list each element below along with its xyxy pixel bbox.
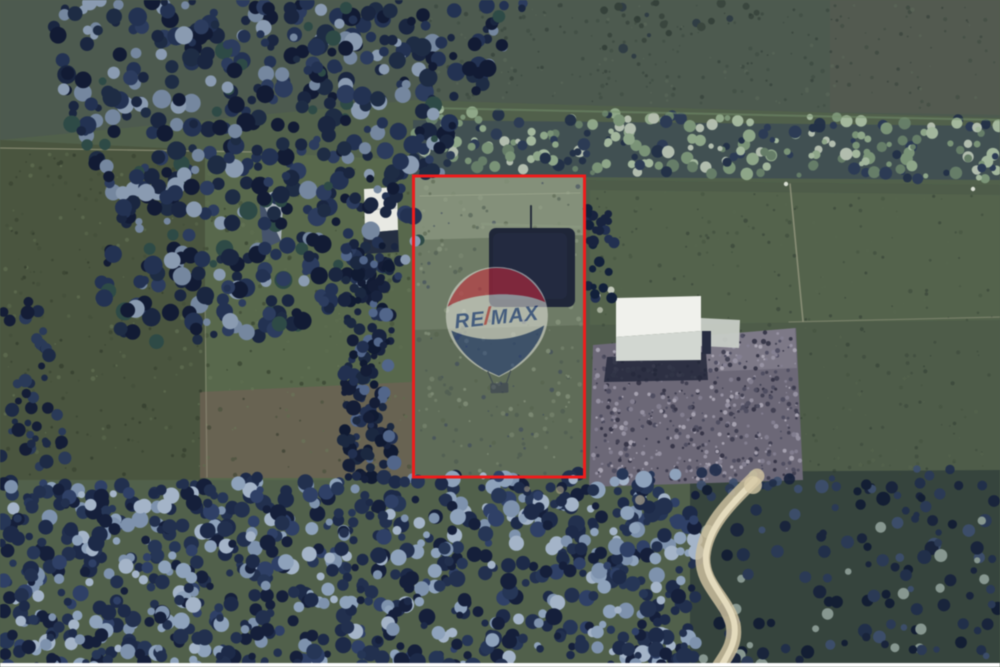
barn-annex-door xyxy=(702,331,711,354)
bottom-white-strip xyxy=(0,663,1000,667)
satellite-photo-canvas: RE/MAX xyxy=(0,0,1000,667)
vehicle-white-2 xyxy=(608,287,615,294)
sand-patch-1 xyxy=(744,476,762,494)
fence-post-west xyxy=(784,182,788,186)
fence-post-east xyxy=(971,187,975,191)
vehicle-white-3 xyxy=(597,307,603,313)
balloon-basket xyxy=(490,383,508,394)
wordmark-re: RE xyxy=(453,307,486,333)
sand-patch-4 xyxy=(524,486,530,492)
satellite-photo[interactable]: RE/MAX xyxy=(0,0,1000,667)
sand-patch-2 xyxy=(635,495,645,505)
barn-roof-top xyxy=(616,296,701,337)
sand-patch-3 xyxy=(556,486,564,494)
